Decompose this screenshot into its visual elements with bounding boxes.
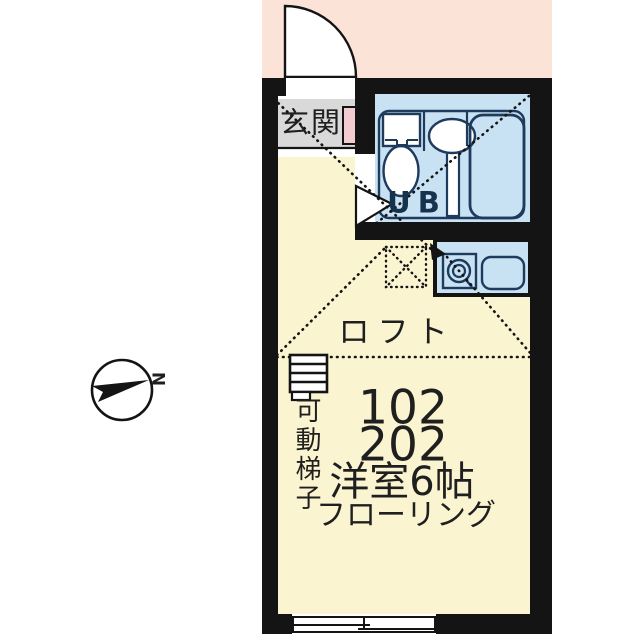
north-label: N	[149, 372, 166, 386]
ladder-icon	[290, 355, 327, 400]
unit-bath-label: UB	[387, 189, 447, 218]
toilet-tank-icon	[383, 114, 420, 146]
movable-ladder-label: 可動梯子	[293, 397, 319, 513]
compass-icon	[92, 360, 152, 420]
wall-ub-left-upper	[355, 78, 375, 154]
entry-door-opening	[286, 78, 355, 96]
sink-pedestal-icon	[447, 150, 459, 216]
shoe-cabinet-icon	[343, 107, 356, 144]
flooring-label: フローリング	[316, 501, 496, 531]
entrance-label: 玄関	[280, 109, 342, 138]
floorplan-drawing	[0, 0, 640, 640]
floorplan-canvas: 玄関 UB ロフト 102 202 洋室6帖 フローリング 可動梯子 N	[0, 0, 640, 640]
wall-left	[262, 78, 278, 634]
room-type-label: 洋室6帖	[329, 462, 474, 502]
loft-label: ロフト	[339, 318, 456, 349]
window-icon	[292, 614, 436, 634]
wall-top-right-segment	[355, 78, 552, 96]
wall-ub-bottom	[355, 222, 532, 240]
wall-right	[530, 78, 552, 634]
